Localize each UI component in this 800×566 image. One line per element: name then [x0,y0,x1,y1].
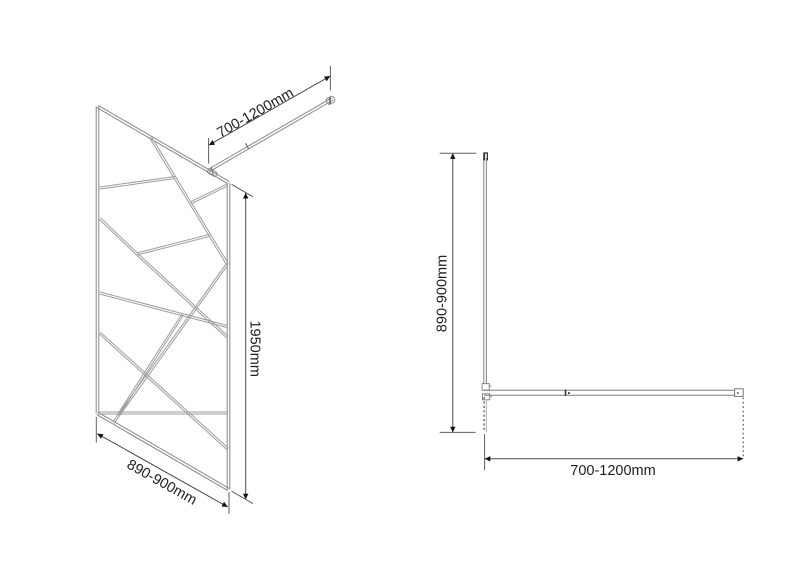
svg-text:700-1200mm: 700-1200mm [570,463,655,479]
svg-text:700-1200mm: 700-1200mm [214,85,296,141]
svg-text:1950mm: 1950mm [247,320,263,376]
svg-text:890-900mm: 890-900mm [434,255,450,332]
